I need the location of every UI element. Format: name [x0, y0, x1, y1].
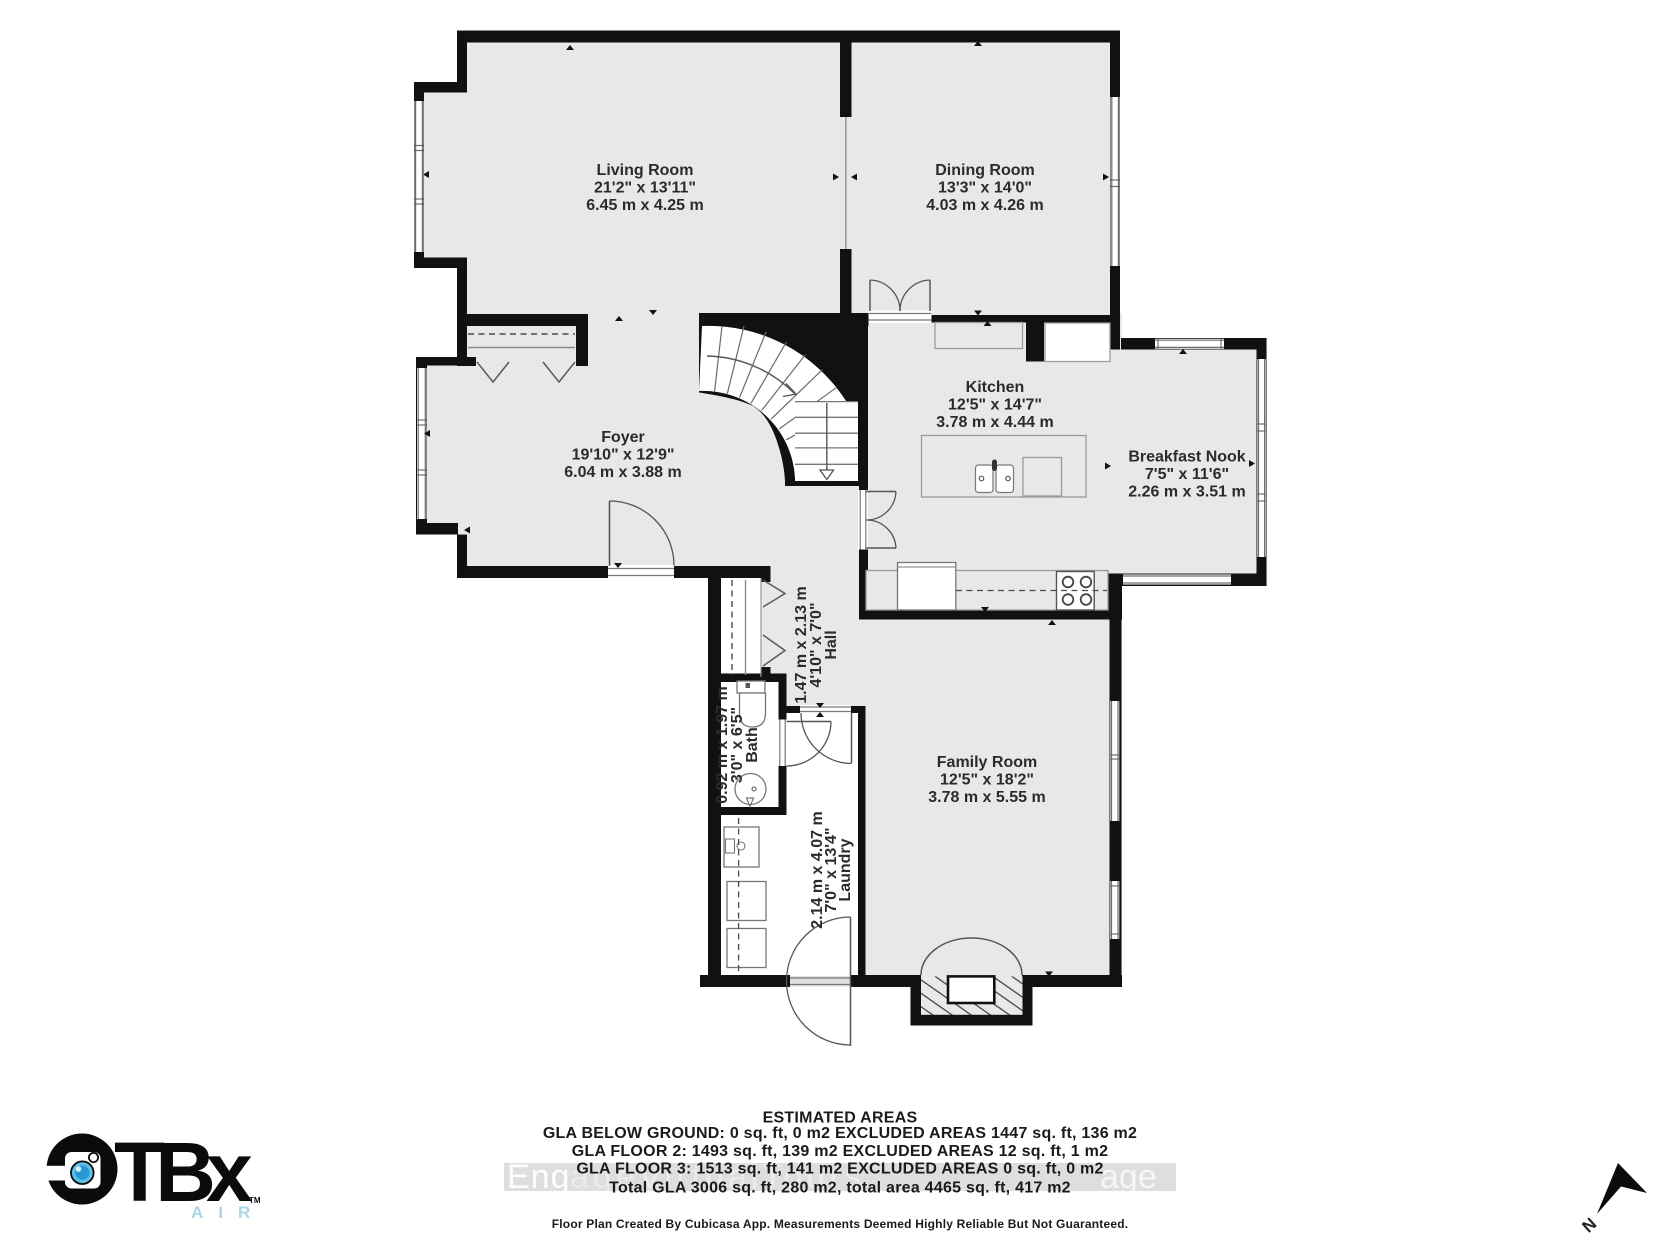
svg-text:4.03 m x 4.26 m: 4.03 m x 4.26 m	[926, 197, 1043, 214]
svg-text:Family Room: Family Room	[937, 754, 1037, 771]
svg-text:Bath: Bath	[744, 727, 761, 763]
svg-text:Floor Plan Created By Cubicasa: Floor Plan Created By Cubicasa App. Meas…	[552, 1217, 1129, 1231]
svg-text:Eng: Eng	[507, 1158, 571, 1196]
svg-text:19'10" x 12'9": 19'10" x 12'9"	[572, 447, 675, 464]
svg-text:ESTIMATED AREAS: ESTIMATED AREAS	[763, 1110, 918, 1127]
svg-text:12'5" x 18'2": 12'5" x 18'2"	[940, 772, 1034, 789]
svg-text:Hall: Hall	[823, 630, 840, 659]
svg-text:7'5" x 11'6": 7'5" x 11'6"	[1145, 466, 1229, 483]
svg-text:1.47 m x 2.13 m: 1.47 m x 2.13 m	[793, 586, 810, 703]
svg-text:Dining Room: Dining Room	[935, 162, 1035, 179]
svg-text:GLA BELOW GROUND: 0 sq. ft, 0: GLA BELOW GROUND: 0 sq. ft, 0 m2 EXCLUDE…	[543, 1125, 1137, 1142]
svg-text:GLA FLOOR 3: 1513 sq. ft, 141: GLA FLOOR 3: 1513 sq. ft, 141 m2 EXCLUDE…	[576, 1161, 1103, 1178]
svg-text:0.92 m x 1.97 m: 0.92 m x 1.97 m	[714, 686, 731, 803]
svg-text:4'10" x 7'0": 4'10" x 7'0"	[808, 602, 825, 687]
svg-text:6.04 m x 3.88 m: 6.04 m x 3.88 m	[564, 464, 681, 481]
svg-text:13'3" x 14'0": 13'3" x 14'0"	[938, 180, 1032, 197]
svg-text:age: age	[1100, 1158, 1157, 1196]
svg-text:Foyer: Foyer	[601, 429, 645, 446]
svg-text:3'0" x 6'5": 3'0" x 6'5"	[729, 707, 746, 783]
svg-text:3.78 m x 4.44 m: 3.78 m x 4.44 m	[936, 414, 1053, 431]
svg-text:2.26 m x 3.51 m: 2.26 m x 3.51 m	[1128, 484, 1245, 501]
svg-text:12'5" x 14'7": 12'5" x 14'7"	[948, 397, 1042, 414]
svg-text:21'2" x 13'11": 21'2" x 13'11"	[594, 180, 696, 197]
svg-text:Kitchen: Kitchen	[966, 379, 1025, 396]
svg-text:Breakfast Nook: Breakfast Nook	[1128, 449, 1245, 466]
svg-text:2.14 m x 4.07 m: 2.14 m x 4.07 m	[809, 811, 826, 928]
svg-text:Total GLA 3006 sq. ft, 280 m2,: Total GLA 3006 sq. ft, 280 m2, total are…	[609, 1180, 1071, 1197]
svg-text:Living Room: Living Room	[597, 162, 694, 179]
svg-text:AIR: AIR	[191, 1203, 265, 1222]
svg-text:GLA FLOOR 2: 1493 sq. ft, 139: GLA FLOOR 2: 1493 sq. ft, 139 m2 EXCLUDE…	[572, 1143, 1108, 1160]
svg-text:3.78 m x 5.55 m: 3.78 m x 5.55 m	[928, 789, 1045, 806]
svg-text:6.45 m x 4.25 m: 6.45 m x 4.25 m	[586, 197, 703, 214]
